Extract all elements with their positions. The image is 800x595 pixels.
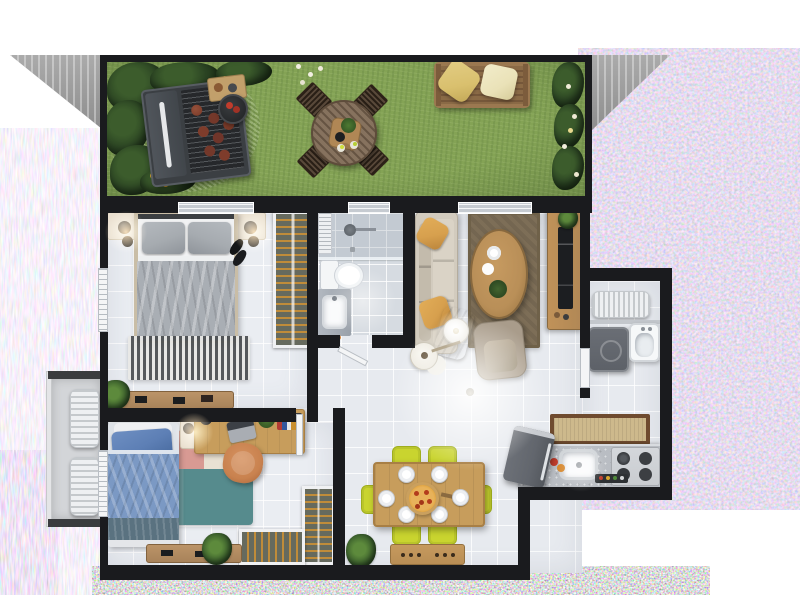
bedroom2-door-leaf	[296, 414, 303, 456]
pendant-lamp	[118, 221, 131, 234]
bench-decor	[135, 396, 147, 403]
headboard	[138, 214, 234, 219]
wall-bedrooms-divider	[100, 408, 296, 422]
grill-lid	[145, 90, 187, 179]
chair-seat	[229, 449, 256, 476]
sliding-door-living-garden	[458, 202, 532, 214]
faucet	[332, 296, 337, 301]
louver-panel	[318, 212, 332, 254]
ac-condenser	[70, 457, 99, 516]
wall-bottom	[100, 565, 530, 580]
television	[558, 227, 573, 309]
armchair	[472, 319, 528, 382]
bench-pillow-cream	[479, 63, 519, 101]
foot-blanket	[108, 518, 179, 540]
wall-bathroom-bottom-a	[307, 335, 340, 348]
dinner-plate	[431, 466, 448, 483]
bench-decor	[161, 550, 173, 556]
toilet-bowl	[334, 262, 364, 289]
dinner-plate	[398, 466, 415, 483]
shower-drain	[350, 247, 355, 252]
table-plant	[341, 118, 356, 133]
shower-head	[344, 224, 356, 236]
table-food	[340, 145, 344, 149]
sideboard-knobs	[401, 553, 405, 557]
knob-panel	[595, 474, 628, 483]
floor-lamp	[443, 318, 469, 344]
burgers	[191, 104, 203, 116]
pizza	[409, 485, 436, 512]
blue-duvet	[108, 454, 179, 520]
pizza-toppings	[414, 491, 419, 496]
garden-wall-left	[100, 55, 107, 203]
wall-bathroom-right	[403, 203, 415, 348]
blanket	[137, 261, 235, 341]
bench-armrest	[523, 64, 528, 106]
kitchen-rug	[550, 414, 650, 445]
garden-round-table	[311, 100, 377, 166]
sink-basin	[635, 333, 654, 357]
ac-condenser	[70, 389, 99, 448]
wall-right-outer	[660, 268, 672, 500]
washer-door	[600, 340, 622, 362]
decor-items	[554, 312, 560, 318]
sink-faucet	[576, 462, 582, 468]
white-flowers	[296, 64, 301, 69]
kettle-coals	[226, 102, 233, 109]
dinner-plate	[431, 506, 448, 523]
dinner-plate	[378, 490, 395, 507]
service-door	[580, 348, 590, 388]
wall-bedroom2-right	[333, 408, 345, 580]
burners	[617, 452, 630, 465]
white-flowers	[566, 84, 571, 89]
window-bedroom2	[98, 450, 108, 517]
double-bed	[134, 211, 238, 343]
sideboard	[390, 544, 465, 565]
bedside-lamp	[183, 423, 194, 434]
table-kettle	[335, 132, 345, 142]
fruit	[550, 458, 558, 466]
wardrobe-horizontal	[239, 529, 305, 565]
laundry-sink	[629, 323, 660, 362]
garden-wall-right	[585, 55, 592, 203]
single-bed	[108, 423, 179, 547]
wall-left	[100, 203, 108, 580]
pendant-lamp	[244, 221, 257, 234]
dinner-plate	[452, 489, 469, 506]
faucet-taps	[641, 327, 645, 331]
sliding-door-bedroom1-garden	[178, 202, 254, 214]
shower-arm	[356, 228, 376, 231]
guitar-soundhole	[421, 352, 428, 359]
bowls	[213, 83, 223, 93]
coffee-cups	[487, 246, 501, 260]
dinner-plate	[398, 506, 415, 523]
striped-rug	[128, 336, 250, 380]
bathroom-window	[348, 202, 390, 214]
balcony-edge	[46, 371, 52, 527]
window-bedroom1	[98, 268, 108, 332]
table-plant	[489, 280, 507, 298]
charcoal-kettle	[218, 94, 248, 124]
knobs	[599, 476, 603, 480]
wall-bathroom-bottom-b	[372, 335, 415, 348]
kitchen-sink	[559, 449, 598, 480]
ac-condenser	[592, 291, 650, 318]
wall-kitchen-bottom	[518, 487, 672, 500]
garden-wall-top	[100, 55, 592, 62]
armchair-cushion	[483, 338, 518, 373]
washing-machine	[588, 327, 629, 372]
balcony-cap-bottom	[48, 519, 108, 527]
wall-bedroom1-right	[307, 203, 318, 422]
pillow	[188, 222, 231, 254]
wardrobe-vertical	[302, 486, 335, 565]
floor-plan-render	[0, 0, 800, 595]
grill-handle	[159, 102, 172, 168]
pillow	[142, 222, 185, 254]
balcony-cap-top	[48, 371, 108, 379]
bench	[112, 391, 234, 409]
oval-coffee-table	[470, 229, 528, 319]
lamp-center	[453, 328, 459, 334]
wall-service-top	[580, 268, 672, 281]
pendant-light	[466, 388, 474, 396]
